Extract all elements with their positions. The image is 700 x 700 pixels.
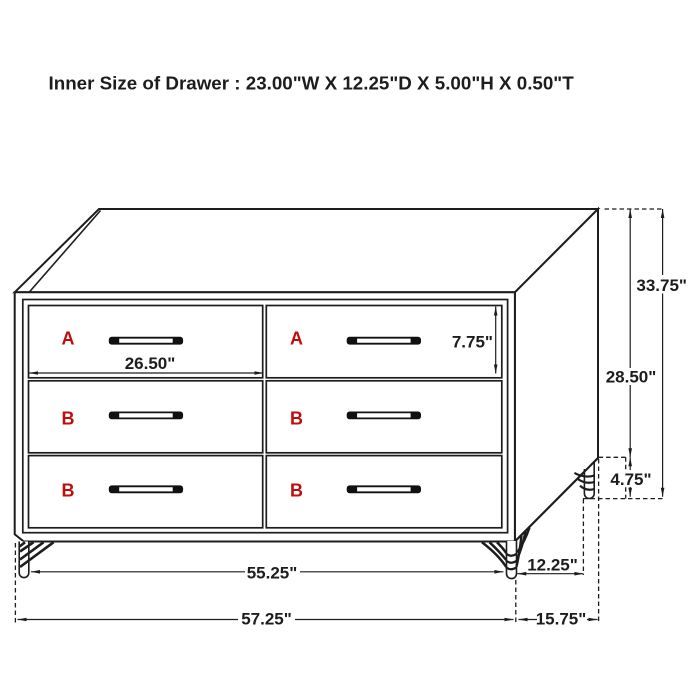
- svg-text:4.75": 4.75": [610, 470, 651, 489]
- svg-text:B: B: [62, 480, 75, 500]
- svg-text:26.50": 26.50": [125, 354, 176, 373]
- svg-text:B: B: [62, 408, 75, 428]
- svg-text:28.50": 28.50": [606, 368, 657, 387]
- svg-text:A: A: [290, 329, 303, 349]
- svg-text:B: B: [290, 408, 303, 428]
- svg-text:15.75": 15.75": [536, 610, 587, 629]
- svg-text:12.25": 12.25": [527, 556, 578, 575]
- svg-text:A: A: [62, 329, 75, 349]
- svg-text:Inner Size of Drawer : 23.00"W: Inner Size of Drawer : 23.00"W X 12.25"D…: [49, 73, 575, 94]
- svg-text:B: B: [290, 480, 303, 500]
- svg-text:57.25": 57.25": [241, 610, 292, 629]
- svg-text:33.75": 33.75": [636, 276, 687, 295]
- svg-text:55.25": 55.25": [247, 564, 298, 583]
- svg-text:7.75": 7.75": [452, 333, 493, 352]
